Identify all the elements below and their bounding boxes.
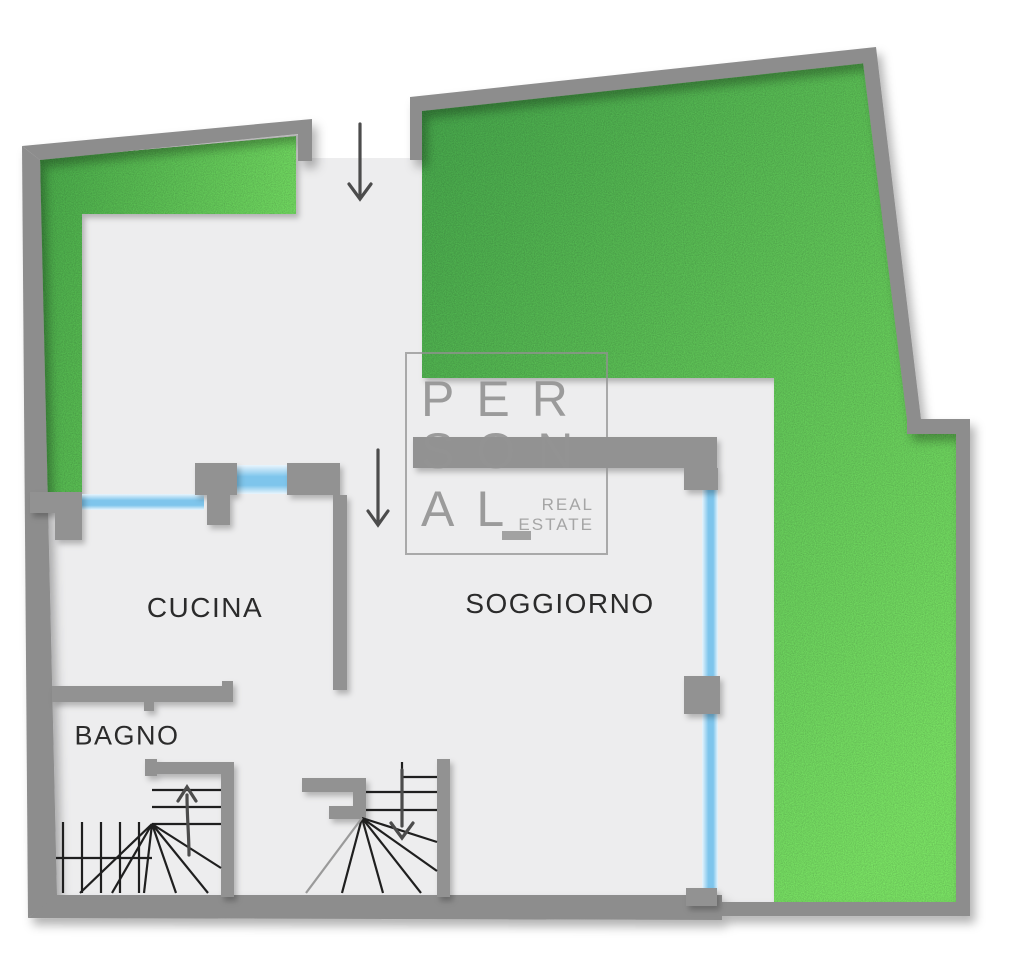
stair-down-wall-foot [329,806,353,819]
kitchen-wall-corner-leg [55,513,82,540]
kitchen-pillar [195,463,237,495]
window-mid-pillar [684,676,720,714]
kitchen-divider-wall [333,495,347,690]
logo-tagline-estate: ESTATE [518,515,594,535]
logo-watermark: PER SON AL REAL ESTATE [405,352,608,555]
logo-line-2: SON [421,426,595,476]
logo-line-1: PER [421,374,590,424]
stair-down-wall-leg [353,792,366,819]
kitchen-top-wall [287,463,340,495]
garden-wall-right-lower [956,434,970,916]
kitchen-window [80,494,204,510]
garden-wall-bottom [700,902,970,916]
kitchen-pillar-leg [207,495,230,525]
stair-up-wall-pillar [145,759,157,776]
room-label-cucina: CUCINA [147,592,263,624]
logo-line-3: AL [421,484,526,534]
exterior-wall-bottom [28,895,722,920]
bathroom-wall-end [222,681,233,702]
stair-up-top-wall [145,762,233,774]
stair-down-right-wall [437,759,450,897]
garden-wall-step [907,419,970,434]
living-room-wall-corner [684,468,718,490]
room-label-bagno: BAGNO [74,721,179,752]
entry-window [237,465,287,494]
window-bottom-cap [686,888,717,906]
room-label-soggiorno: SOGGIORNO [465,588,654,620]
bathroom-wall-tab [144,702,154,711]
stair-down-wall-top [302,778,366,792]
bathroom-top-wall [52,686,233,702]
kitchen-wall-corner [30,492,82,513]
logo-tagline-real: REAL [518,495,594,515]
logo-tagline: REAL ESTATE [518,495,594,536]
floor-plan: CUCINA SOGGIORNO BAGNO PER SON AL REAL E… [0,0,1015,960]
stair-up-right-wall [221,762,234,897]
